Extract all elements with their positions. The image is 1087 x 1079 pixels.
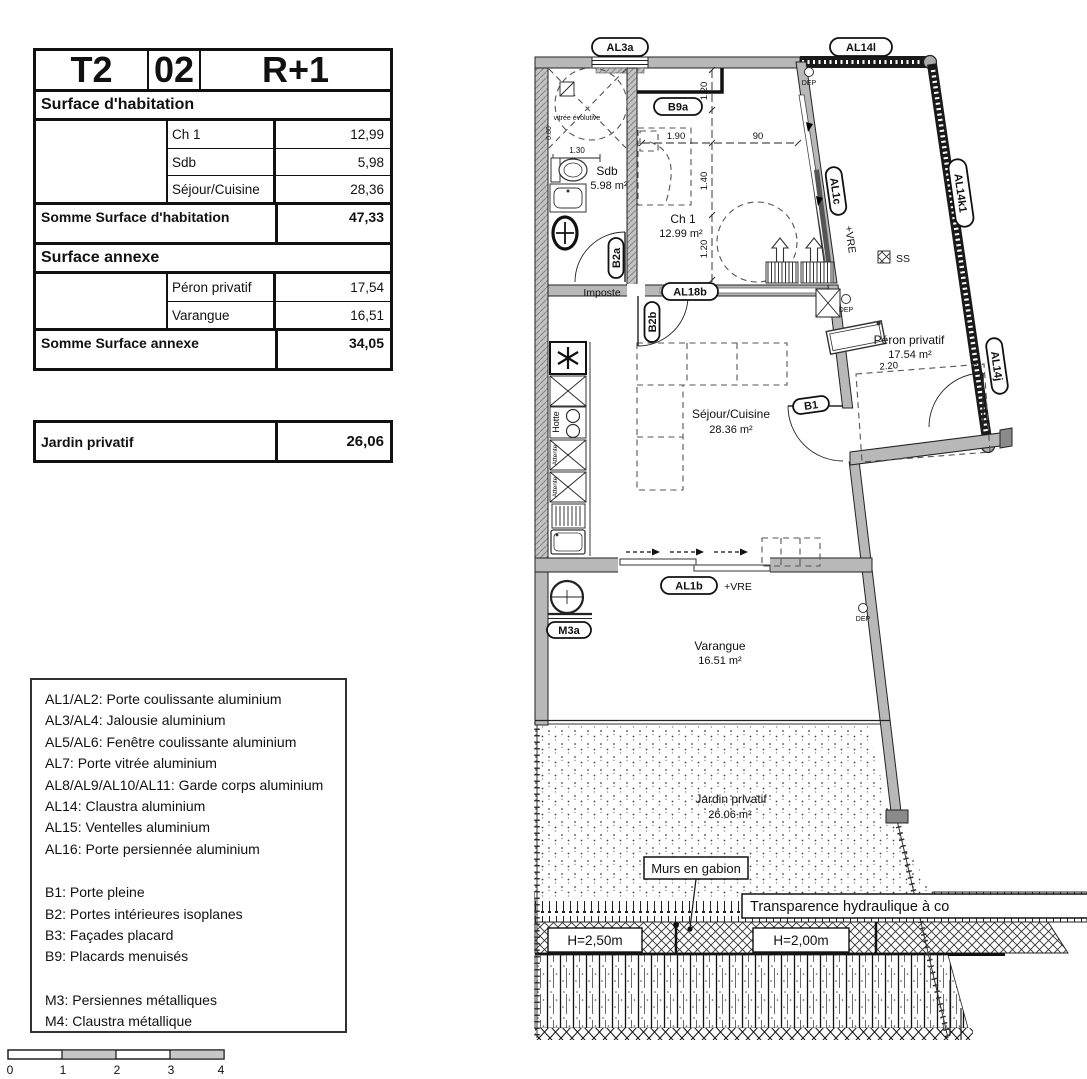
row-value: 12,99: [276, 121, 390, 148]
habitation-rows: Ch 1 12,99 Sdb 5,98 Séjour/Cuisine 28,36: [33, 121, 393, 205]
tag-b2b: B2b: [645, 302, 660, 342]
drainer-unit: [552, 504, 585, 528]
habitation-total-row: Somme Surface d'habitation 47,33: [33, 205, 393, 245]
svg-text:Ch 1: Ch 1: [670, 212, 696, 226]
scale-tick: 3: [168, 1063, 175, 1077]
legend-item: AL8/AL9/AL10/AL11: Garde corps aluminium: [45, 775, 345, 796]
svg-text:B2a: B2a: [611, 247, 623, 268]
dim-bed-width: 1.90: [667, 131, 686, 142]
row-label: Sdb: [168, 149, 276, 175]
spacer-cell: [36, 121, 168, 202]
unit-number: 02: [149, 51, 201, 89]
fridge-unit: [550, 342, 586, 374]
jardin-label: Jardin privatif: [36, 423, 278, 460]
svg-text:Séjour/Cuisine: Séjour/Cuisine: [692, 407, 770, 421]
jardin-table: Jardin privatif 26,06: [33, 420, 393, 463]
scale-bar: 0 1 2 3 4: [7, 1050, 225, 1077]
legend-item: AL15: Ventelles aluminium: [45, 817, 345, 838]
legend-item: AL14: Claustra aluminium: [45, 796, 345, 817]
surface-table: T2 02 R+1 Surface d'habitation Ch 1 12,9…: [33, 48, 393, 371]
svg-text:DEP: DEP: [839, 307, 854, 314]
al1c-vre-suffix: +VRE: [842, 225, 858, 254]
water-heater-symbol: [553, 217, 577, 249]
svg-text:AL14l: AL14l: [846, 42, 876, 54]
floorplan-sheet: vitrée évolutive 1.30 0.80: [0, 0, 1087, 1079]
tag-b1: B1: [792, 395, 830, 415]
piles-band: [535, 955, 973, 1040]
svg-text:AL1b: AL1b: [675, 581, 703, 593]
gabion-label: Murs en gabion: [651, 861, 741, 876]
tag-al1c: AL1c: [825, 166, 848, 216]
shower-note: vitrée évolutive: [554, 115, 601, 122]
east-wall-cap: [886, 810, 908, 823]
legend-item: M3: Persiennes métalliques: [45, 990, 345, 1011]
room-label-sdb: Sdb 5.98 m²: [590, 164, 628, 192]
svg-text:AL18b: AL18b: [673, 287, 707, 299]
svg-text:B2b: B2b: [647, 311, 659, 332]
appliance-label: Attente: [552, 476, 559, 497]
row-label: Varangue: [168, 302, 276, 328]
ss-marker: SS: [878, 251, 910, 265]
al1b-vre-suffix: +VRE: [724, 581, 752, 593]
scale-tick: 1: [60, 1063, 67, 1077]
appliance-slot-2: Attente: [550, 472, 586, 502]
legend-gap: [45, 860, 345, 882]
cabinet-unit: [550, 376, 586, 406]
imposte-label: Imposte: [583, 287, 621, 299]
door-b1: [788, 406, 843, 461]
table-row: Séjour/Cuisine 28,36: [168, 175, 390, 202]
transparence-label: Transparence hydraulique à co: [750, 899, 949, 915]
claustra-al14k1-al14j: [932, 64, 995, 453]
svg-text:B1: B1: [803, 399, 819, 413]
row-value: 17,54: [276, 274, 390, 301]
annexe-total-row: Somme Surface annexe 34,05: [33, 331, 393, 371]
legend-item: AL16: Porte persiennée aluminium: [45, 839, 345, 860]
total-label: Somme Surface annexe: [36, 331, 278, 368]
transparence-callout: Transparence hydraulique à co: [742, 894, 1087, 918]
cooktop-hood: Hotte: [550, 407, 586, 438]
h250-label: H=2,50m: [567, 933, 622, 948]
habitation-section-title: Surface d'habitation: [33, 92, 393, 121]
svg-text:Sdb: Sdb: [596, 164, 618, 178]
svg-text:DEP: DEP: [856, 616, 871, 623]
row-value: 28,36: [276, 176, 390, 202]
tag-al18b: AL18b: [662, 283, 718, 300]
fan-symbol: [551, 581, 583, 613]
sliding-direction-arrows: [626, 549, 748, 556]
jardin-value: 26,06: [278, 423, 390, 460]
tag-m3a: M3a: [547, 622, 591, 638]
up-arrow-icon: [772, 238, 788, 262]
row-label: Péron privatif: [168, 274, 276, 301]
duct-box: [816, 289, 840, 317]
room-label-varangue: Varangue 16.51 m²: [694, 639, 745, 667]
table-row: Sdb 5,98: [168, 148, 390, 175]
dep-marker: DEP: [839, 295, 854, 315]
svg-text:12.99 m²: 12.99 m²: [659, 228, 703, 240]
scale-tick: 2: [114, 1063, 121, 1077]
room-label-sejour: Séjour/Cuisine 28.36 m²: [692, 407, 770, 436]
svg-text:Péron privatif: Péron privatif: [874, 333, 945, 347]
dim-shower-depth: 0.80: [546, 126, 553, 140]
window-al3a: [592, 57, 648, 73]
unit-floor: R+1: [201, 51, 390, 89]
svg-text:26.06 m²: 26.06 m²: [708, 809, 752, 821]
shower: vitrée évolutive 1.30 0.80: [546, 68, 627, 162]
dim-shower-width: 1.30: [569, 146, 585, 155]
claustra-al14l: [800, 56, 937, 69]
legend-item: AL1/AL2: Porte coulissante aluminium: [45, 689, 345, 710]
sdb-ch1-wall: [627, 68, 637, 285]
scale-tick: 0: [7, 1063, 14, 1077]
hood-label: Hotte: [551, 411, 561, 433]
persienne-m3a-symbol: [548, 614, 592, 619]
svg-text:17.54 m²: 17.54 m²: [888, 349, 932, 361]
svg-text:AL3a: AL3a: [607, 42, 635, 54]
total-value: 34,05: [278, 331, 390, 368]
annexe-section-title: Surface annexe: [33, 245, 393, 274]
legend-item: B1: Porte pleine: [45, 882, 345, 903]
peron-south-wall: [850, 432, 1008, 465]
table-row: Varangue 16,51: [168, 301, 390, 328]
tag-al14l: AL14l: [830, 38, 892, 56]
svg-text:Jardin privatif: Jardin privatif: [695, 792, 767, 806]
row-value: 16,51: [276, 302, 390, 328]
room-label-peron: Péron privatif 17.54 m²: [874, 333, 945, 361]
row-value: 5,98: [276, 149, 390, 175]
dim-v-mid: 1.40: [699, 172, 710, 191]
washbasin: [550, 184, 586, 212]
kitchen-units: Hotte Attente Attente: [550, 342, 590, 556]
dim-v-bot: 1.20: [699, 240, 710, 259]
unit-type: T2: [36, 51, 149, 89]
total-label: Somme Surface d'habitation: [36, 205, 278, 242]
svg-text:SS: SS: [896, 253, 910, 265]
legend-item: AL5/AL6: Fenêtre coulissante aluminium: [45, 732, 345, 753]
unit-header-row: T2 02 R+1: [33, 48, 393, 92]
svg-text:Varangue: Varangue: [694, 639, 745, 653]
tag-b2a: B2a: [609, 238, 624, 278]
appliance-label: Attente: [552, 444, 559, 465]
appliance-slot-1: Attente: [550, 440, 586, 470]
svg-text:5.98 m²: 5.98 m²: [590, 180, 628, 192]
row-label: Séjour/Cuisine: [168, 176, 276, 202]
row-label: Ch 1: [168, 121, 276, 148]
h200-label: H=2,00m: [773, 933, 828, 948]
svg-text:28.36 m²: 28.36 m²: [709, 424, 753, 436]
spacer-cell: [36, 274, 168, 328]
legend-item: B9: Placards menuisés: [45, 946, 345, 967]
tag-b9a: B9a: [654, 98, 702, 115]
legend-box: AL1/AL2: Porte coulissante aluminium AL3…: [30, 678, 347, 1033]
room-label-ch1: Ch 1 12.99 m²: [659, 212, 703, 240]
legend-gap: [45, 968, 345, 990]
table-row: Péron privatif 17,54: [168, 274, 390, 301]
legend-item: AL3/AL4: Jalousie aluminium: [45, 710, 345, 731]
dim-passage: 90: [753, 131, 764, 142]
legend-item: AL7: Porte vitrée aluminium: [45, 753, 345, 774]
svg-text:B9a: B9a: [668, 102, 689, 114]
annexe-rows: Péron privatif 17,54 Varangue 16,51: [33, 274, 393, 331]
total-value: 47,33: [278, 205, 390, 242]
svg-text:16.51 m²: 16.51 m²: [698, 655, 742, 667]
sink-unit: [551, 530, 585, 554]
legend-item: B2: Portes intérieures isoplanes: [45, 904, 345, 925]
legend-item: B3: Façades placard: [45, 925, 345, 946]
tag-al14j: AL14j: [985, 337, 1009, 395]
legend-item: M4: Claustra métallique: [45, 1011, 345, 1032]
dim-v-top: 1.20: [699, 82, 710, 101]
svg-text:DEP: DEP: [802, 80, 817, 87]
up-arrow-icon: [806, 238, 822, 262]
table-row: Ch 1 12,99: [168, 121, 390, 148]
svg-text:M3a: M3a: [558, 625, 580, 637]
scale-tick: 4: [218, 1063, 225, 1077]
tag-al1b: AL1b: [661, 577, 717, 594]
dim-peron: 2.20: [879, 360, 898, 373]
tag-al3a: AL3a: [592, 38, 648, 56]
varangue-west-wall: [535, 572, 548, 725]
toilet: [551, 158, 587, 182]
